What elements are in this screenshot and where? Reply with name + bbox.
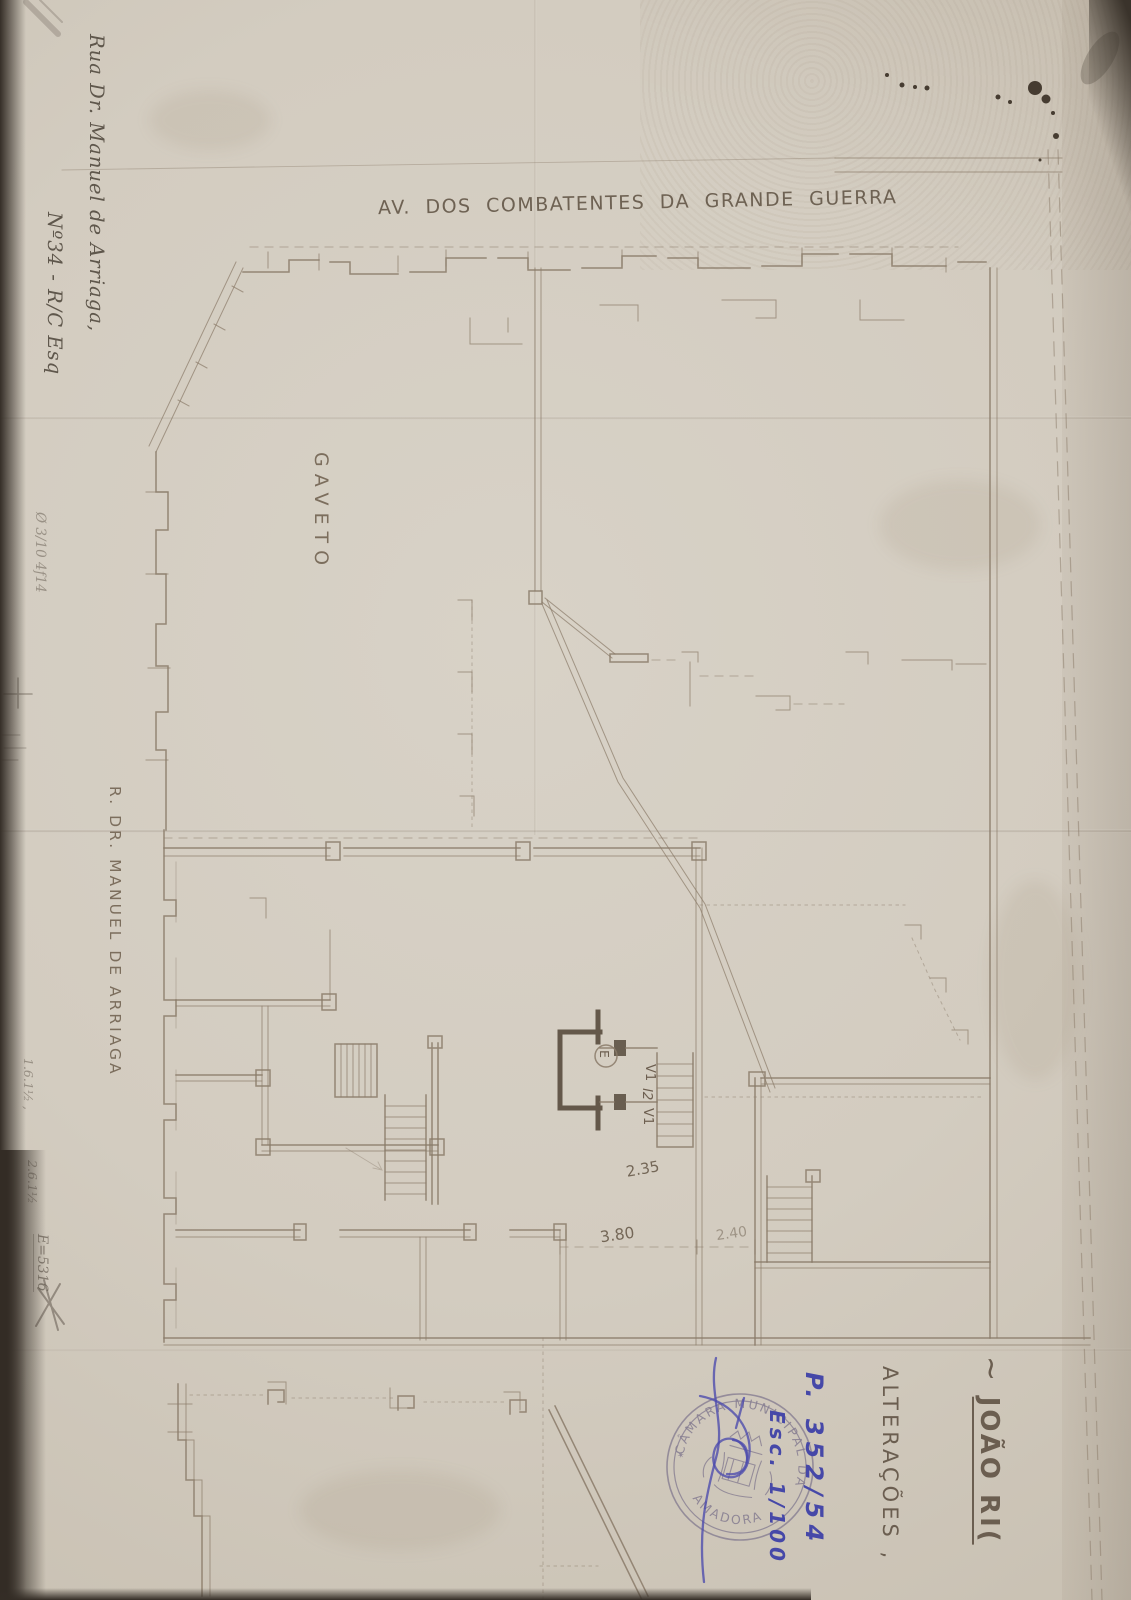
boundary-left: [146, 262, 243, 1342]
process-number: P. 352/54: [800, 1372, 828, 1547]
stamp-arc-bottom: AMADORA: [686, 1488, 769, 1535]
opening-label-v1-top: V1: [642, 1064, 657, 1081]
boundary-right: [990, 268, 997, 1338]
opening-label-l2: l2: [639, 1088, 655, 1100]
building-walls: [164, 838, 1090, 1345]
elevator-label: E: [597, 1050, 612, 1058]
corner-label-gaveto: GAVETO: [310, 452, 332, 602]
title-name: JOÃO RI(: [974, 1397, 1004, 1545]
address-line2: Nº34 - R/C Esq: [33, 34, 75, 394]
sheet-border-lines: [62, 150, 1102, 1600]
scale-note: Esc. 1/100: [758, 1372, 795, 1600]
lower-plan-fragments: [168, 1338, 648, 1600]
scan-edge-left-lower: [0, 1150, 46, 1600]
margin-note-upper-left: Ø 3/10 4f14: [32, 512, 48, 642]
project-title: ~ JOÃO RI(: [973, 1356, 1008, 1600]
scan-edge-top-right: [1089, 0, 1131, 235]
boundary-top: [243, 247, 986, 344]
street-label-left: R. DR. MANUEL DE ARRIAGA: [106, 786, 124, 1106]
handwritten-address: Rua Dr. Manuel de Arriaga, Nº34 - R/C Es…: [33, 34, 117, 394]
title-tilde: ~: [973, 1356, 1008, 1397]
staircases: [335, 1036, 820, 1262]
opening-label-v1-bottom: V1: [640, 1108, 655, 1125]
blue-ink-notes: P. 352/54 Esc. 1/100: [758, 1372, 832, 1600]
svg-text:AMADORA: AMADORA: [686, 1488, 769, 1535]
scanned-floorplan-document: CÂMARA MUNICIPAL DA AMADORA ✶ AV. DOS CO…: [0, 0, 1131, 1600]
scan-edge-bottom: [0, 1588, 811, 1600]
lot-division-lines: [458, 268, 986, 1092]
floor-plan-drawing: CÂMARA MUNICIPAL DA AMADORA ✶: [0, 0, 1131, 1600]
title-subtitle: ALTERAÇÕES ,: [878, 1366, 902, 1600]
address-line1: Rua Dr. Manuel de Arriaga,: [85, 34, 108, 332]
stamp-star: ✶: [675, 1450, 687, 1462]
